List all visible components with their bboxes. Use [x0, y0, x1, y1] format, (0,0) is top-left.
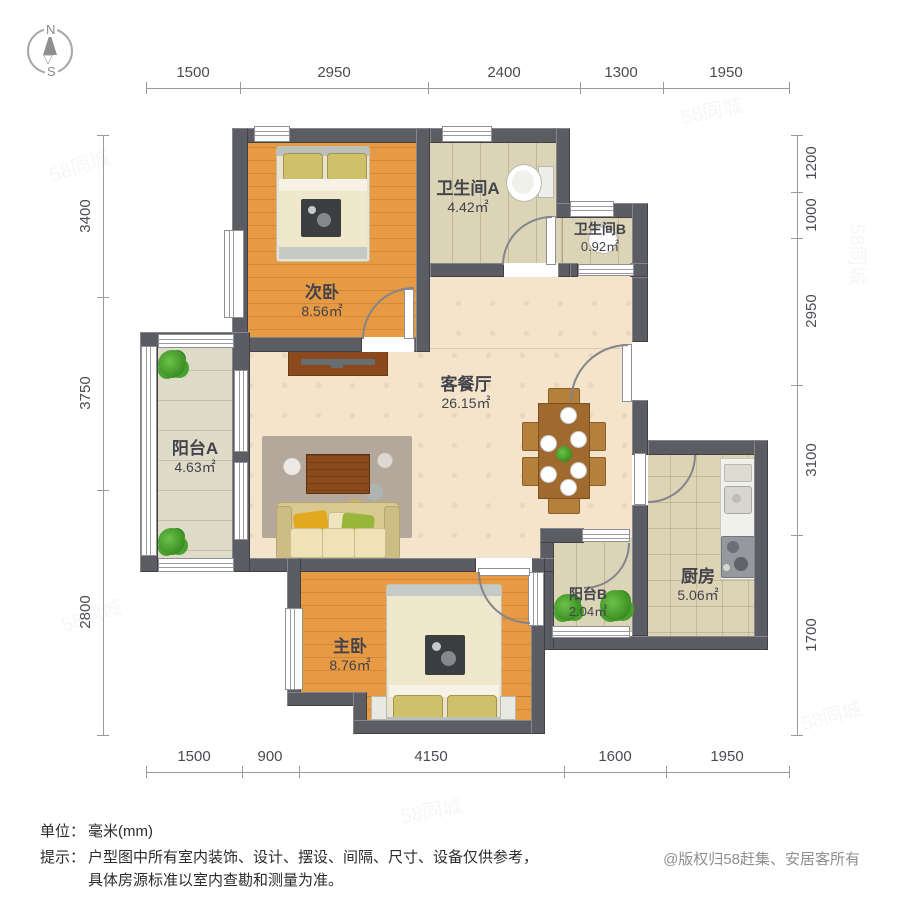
- window-balcony-b-bottom: [552, 626, 630, 638]
- bed-foot-strip: [279, 247, 367, 259]
- tv-base-icon: [331, 364, 343, 368]
- tick: [791, 192, 803, 193]
- room-area: 0.92㎡: [530, 239, 670, 255]
- dimension-top: 1300: [581, 64, 661, 82]
- wall: [558, 263, 570, 277]
- compass-north-label: N: [44, 22, 57, 37]
- sofa-arm: [384, 506, 400, 560]
- kitchen-burner: [727, 541, 739, 553]
- room-area: 26.15㎡: [396, 395, 536, 413]
- dimension-right: 2950: [803, 271, 821, 351]
- room-name: 厨房: [628, 566, 768, 587]
- plant-balcony-a-bottom: [158, 528, 185, 555]
- tv-stand: [288, 350, 388, 376]
- kitchen-sink-drain: [732, 494, 741, 503]
- sofa-cushion: [322, 528, 355, 558]
- dining-plate: [570, 462, 587, 479]
- door-leaf-kitchen: [634, 453, 646, 505]
- watermark-text: 58同城: [845, 223, 874, 285]
- bed-pillow: [327, 153, 367, 181]
- unit-value: 毫米(mm): [88, 820, 153, 841]
- room-label-bathroom-a: 卫生间A 4.42㎡: [398, 178, 538, 217]
- dimension-line-top: [146, 88, 790, 89]
- room-label-master-bedroom: 主卧 8.76㎡: [280, 636, 420, 675]
- window-second-bedroom-left: [224, 230, 244, 318]
- wall: [430, 263, 504, 277]
- tick: [97, 735, 109, 736]
- dimension-bottom: 900: [230, 748, 310, 766]
- floorplan-canvas: ▽ N S: [0, 0, 900, 900]
- room-name: 卫生间A: [398, 178, 538, 199]
- room-area: 5.06㎡: [628, 587, 768, 605]
- copyright-text: @版权归58赶集、安居客所有: [560, 848, 860, 869]
- dimension-left: 3750: [77, 353, 95, 433]
- room-area: 2.04㎡: [518, 604, 658, 620]
- dimension-bottom: 1500: [154, 748, 234, 766]
- wall: [648, 440, 768, 455]
- unit-label: 单位：: [40, 820, 85, 841]
- window-bathroom-a: [442, 126, 492, 142]
- wall: [540, 528, 584, 543]
- tick: [146, 82, 147, 94]
- watermark-text: 58同城: [678, 89, 745, 130]
- tip-label: 提示：: [40, 846, 85, 867]
- dining-plate: [560, 479, 577, 496]
- dimension-right: 3100: [803, 420, 821, 500]
- dimension-top: 1500: [153, 64, 233, 82]
- bed-throw-dot: [308, 206, 316, 214]
- dimension-left: 3400: [77, 176, 95, 256]
- room-label-second-bedroom: 次卧 8.56㎡: [252, 282, 392, 321]
- wall: [632, 400, 648, 455]
- nightstand: [371, 696, 387, 720]
- room-area: 4.63㎡: [125, 459, 265, 477]
- tick: [791, 238, 803, 239]
- watermark-text: 58同城: [797, 692, 865, 736]
- compass-south-label: S: [45, 64, 58, 79]
- wall: [540, 636, 768, 650]
- bed-pillow: [283, 153, 323, 181]
- tick: [97, 490, 109, 491]
- wall: [416, 128, 430, 352]
- tick: [789, 766, 790, 778]
- wall: [353, 720, 545, 734]
- room-name: 卫生间B: [530, 221, 670, 239]
- compass: ▽ N S: [25, 24, 77, 76]
- dimension-bottom: 1950: [687, 748, 767, 766]
- room-name: 阳台A: [125, 438, 265, 459]
- coffee-table: [306, 454, 370, 494]
- bed-throw-dot: [441, 651, 456, 666]
- bed-throw-dot: [317, 213, 331, 227]
- dining-plate: [540, 435, 557, 452]
- door-opening-bathroom-a: [504, 263, 558, 277]
- room-name: 次卧: [252, 282, 392, 303]
- dimension-left: 2800: [77, 572, 95, 652]
- tick: [791, 135, 803, 136]
- wall: [754, 440, 768, 650]
- dimension-bottom: 4150: [391, 748, 471, 766]
- window-balcony-a-bottom: [158, 558, 234, 572]
- tick: [240, 82, 241, 94]
- dining-chair: [588, 457, 606, 486]
- tick: [242, 766, 243, 778]
- dimension-line-right: [797, 135, 798, 735]
- tick: [666, 766, 667, 778]
- tick: [299, 766, 300, 778]
- window-second-bedroom-top: [254, 126, 290, 142]
- window-balcony-a-top: [158, 334, 234, 348]
- room-area: 4.42㎡: [398, 199, 538, 217]
- dimension-top: 2400: [464, 64, 544, 82]
- room-name: 客餐厅: [396, 374, 536, 395]
- tick: [428, 82, 429, 94]
- dining-centerpiece-plant: [556, 446, 572, 462]
- dimension-right: 1700: [803, 595, 821, 675]
- dimension-right: 1000: [803, 175, 821, 255]
- dimension-line-left: [103, 135, 104, 735]
- wall: [570, 263, 578, 277]
- bed-double-second-bedroom: [276, 146, 370, 262]
- wall: [632, 277, 648, 342]
- entrance-door-opening: [632, 342, 648, 400]
- dining-plate: [540, 466, 557, 483]
- sofa-cushion: [290, 528, 323, 558]
- watermark-text: 58同城: [398, 790, 464, 829]
- tick: [789, 82, 790, 94]
- sliding-door-hallway: [578, 264, 634, 276]
- tick: [564, 766, 565, 778]
- room-label-living-dining: 客餐厅 26.15㎡: [396, 374, 536, 413]
- dining-plate: [570, 431, 587, 448]
- tick: [580, 82, 581, 94]
- tip-line1: 户型图中所有室内装饰、设计、摆设、间隔、尺寸、设备仅供参考，: [88, 846, 538, 867]
- tick: [146, 766, 147, 778]
- nightstand: [500, 696, 516, 720]
- dining-chair: [588, 422, 606, 451]
- window-bathroom-b: [570, 201, 614, 217]
- door-opening-second-bedroom: [362, 337, 414, 352]
- dimension-top: 1950: [686, 64, 766, 82]
- room-area: 8.56㎡: [252, 303, 392, 321]
- room-label-balcony-a: 阳台A 4.63㎡: [125, 438, 265, 477]
- dining-plate: [560, 407, 577, 424]
- plant-balcony-a-top: [158, 350, 186, 378]
- tick: [97, 135, 109, 136]
- tip-line2: 具体房源标准以室内查勘和测量为准。: [88, 869, 343, 890]
- tick: [663, 82, 664, 94]
- tick: [791, 385, 803, 386]
- tick: [97, 297, 109, 298]
- dimension-top: 2950: [294, 64, 374, 82]
- sliding-door-balcony-b: [582, 529, 630, 542]
- room-area: 8.76㎡: [280, 657, 420, 675]
- room-label-bathroom-b: 卫生间B 0.92㎡: [530, 221, 670, 255]
- room-label-kitchen: 厨房 5.06㎡: [628, 566, 768, 605]
- floor-living-upper: [416, 266, 638, 360]
- room-name: 主卧: [280, 636, 420, 657]
- dimension-bottom: 1600: [575, 748, 655, 766]
- tick: [791, 535, 803, 536]
- kitchen-cutting-board: [724, 464, 752, 482]
- wall: [232, 337, 362, 352]
- tick: [791, 735, 803, 736]
- bed-throw-dot: [432, 642, 441, 651]
- sofa-cushion: [354, 528, 386, 558]
